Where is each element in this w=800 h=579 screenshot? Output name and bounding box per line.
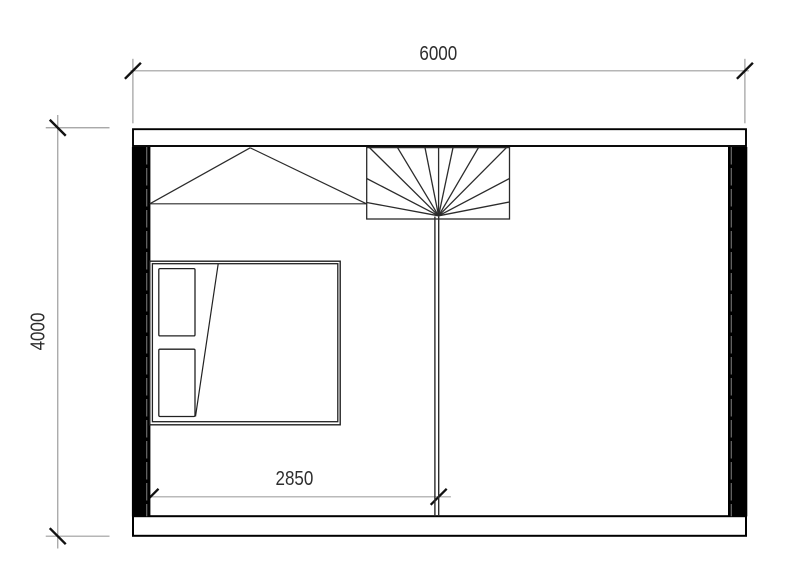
svg-text:2850: 2850: [276, 467, 314, 490]
svg-text:4000: 4000: [26, 313, 49, 351]
svg-text:6000: 6000: [419, 41, 457, 64]
